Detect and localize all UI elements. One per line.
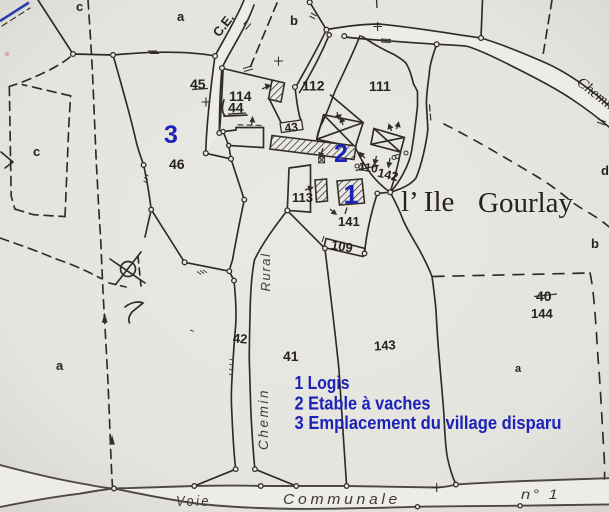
svg-text:Rural: Rural xyxy=(258,252,273,291)
svg-text:b: b xyxy=(290,13,298,28)
svg-text:a: a xyxy=(56,358,64,373)
svg-text:2 Etable à vaches: 2 Etable à vaches xyxy=(295,394,431,414)
svg-text:46: 46 xyxy=(169,156,185,172)
svg-text:40: 40 xyxy=(536,288,552,304)
svg-text:41: 41 xyxy=(283,348,299,364)
svg-text:45: 45 xyxy=(190,76,206,92)
svg-text:n° 1: n° 1 xyxy=(521,486,560,502)
svg-text:1 Logis: 1 Logis xyxy=(295,373,350,393)
svg-text:c: c xyxy=(33,144,40,159)
svg-text:c: c xyxy=(76,0,83,14)
svg-text:43: 43 xyxy=(284,120,299,136)
svg-text:3 Emplacement du village dispa: 3 Emplacement du village disparu xyxy=(295,413,562,433)
svg-text:l’ Ile: l’ Ile xyxy=(401,186,454,218)
svg-text:110: 110 xyxy=(358,159,379,176)
svg-text:Gourlay: Gourlay xyxy=(478,187,574,219)
svg-text:113: 113 xyxy=(292,190,313,205)
svg-text:112: 112 xyxy=(302,78,325,94)
svg-text:d: d xyxy=(601,163,609,178)
svg-text:141: 141 xyxy=(338,214,360,229)
svg-text:2: 2 xyxy=(334,140,348,168)
svg-text:b: b xyxy=(591,236,599,251)
svg-text:143: 143 xyxy=(374,337,397,353)
svg-text:a: a xyxy=(177,9,185,24)
svg-text:a: a xyxy=(515,363,522,375)
svg-text:Voie: Voie xyxy=(176,493,211,510)
svg-text:144: 144 xyxy=(531,306,553,321)
svg-text:Chemin: Chemin xyxy=(256,388,271,450)
svg-text:1: 1 xyxy=(344,180,359,210)
svg-text:44: 44 xyxy=(228,100,244,116)
svg-text:42: 42 xyxy=(232,330,248,346)
svg-text:3: 3 xyxy=(164,121,178,149)
svg-text:111: 111 xyxy=(369,78,391,94)
svg-text:Communale: Communale xyxy=(283,491,401,508)
